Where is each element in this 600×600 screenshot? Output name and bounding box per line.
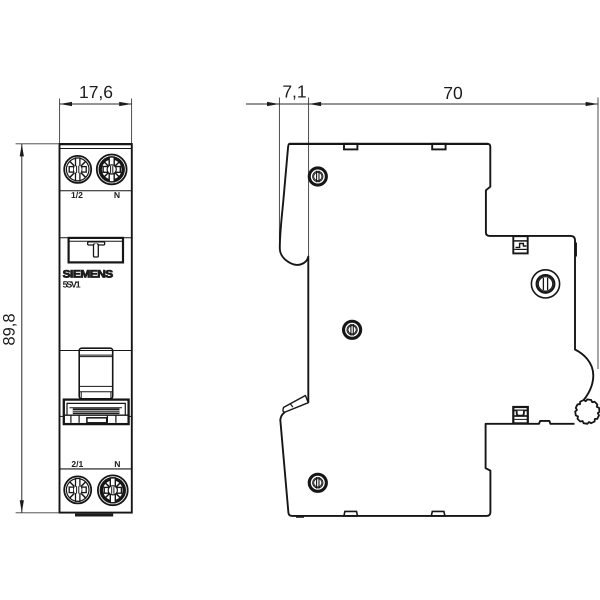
svg-text:7,1: 7,1 [282, 81, 306, 101]
svg-text:1/2: 1/2 [71, 190, 83, 200]
svg-text:70: 70 [443, 83, 463, 103]
svg-text:89,8: 89,8 [1, 313, 19, 345]
svg-text:17,6: 17,6 [79, 82, 113, 102]
svg-text:5SV1: 5SV1 [63, 279, 81, 289]
svg-text:N: N [114, 459, 120, 469]
svg-text:2/1: 2/1 [71, 459, 83, 469]
svg-text:SIEMENS: SIEMENS [63, 269, 114, 281]
svg-text:N: N [114, 190, 120, 200]
